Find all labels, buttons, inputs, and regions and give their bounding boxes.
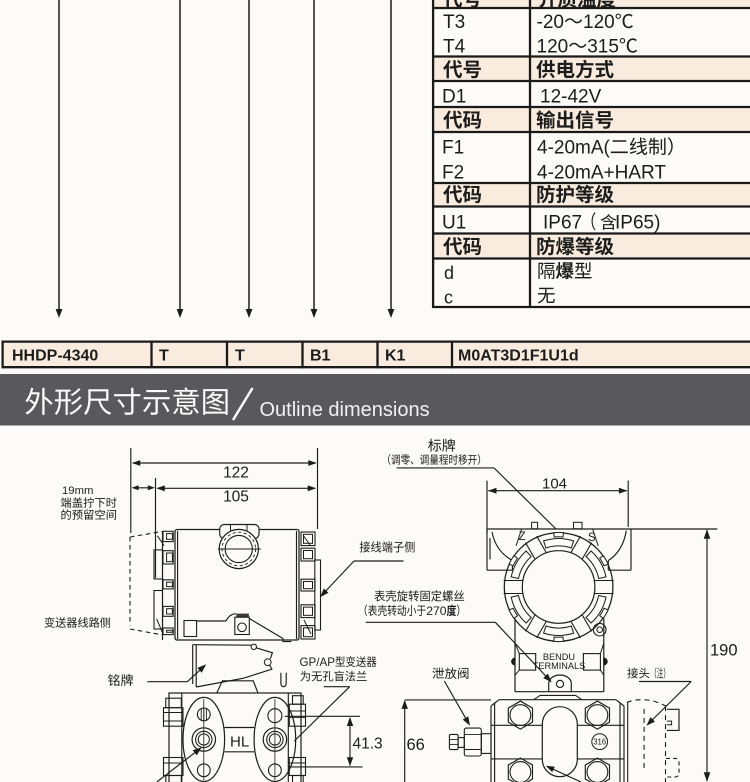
svg-text:M0AT3D1F1U1d: M0AT3D1F1U1d [458, 348, 579, 365]
svg-text:T: T [235, 348, 245, 365]
svg-text:HL: HL [230, 734, 249, 751]
svg-text:T: T [159, 348, 169, 365]
svg-text:12-42V: 12-42V [540, 87, 602, 108]
svg-text:IP65): IP65) [615, 213, 660, 234]
svg-text:IP67: IP67 [543, 213, 582, 234]
svg-text:122: 122 [223, 465, 249, 482]
svg-text:F2: F2 [442, 163, 464, 184]
svg-text:316: 316 [593, 738, 606, 747]
svg-text:TERMINALS: TERMINALS [533, 661, 586, 671]
svg-text:HHDP-4340: HHDP-4340 [12, 348, 98, 365]
svg-text:T3: T3 [443, 12, 465, 33]
svg-text:104: 104 [542, 476, 567, 493]
svg-text:U1: U1 [442, 213, 466, 234]
svg-text:-20: -20 [537, 12, 564, 33]
svg-text:T4: T4 [443, 37, 466, 58]
svg-text:19mm: 19mm [62, 485, 93, 497]
svg-text:105: 105 [223, 489, 249, 506]
svg-text:F1: F1 [442, 138, 464, 159]
svg-text:4-20mA(: 4-20mA( [537, 138, 611, 159]
svg-text:190: 190 [710, 642, 738, 660]
svg-text:K1: K1 [385, 348, 406, 365]
svg-text:66: 66 [407, 736, 425, 754]
svg-text:315: 315 [587, 37, 619, 58]
svg-text:D1: D1 [442, 87, 466, 108]
svg-text:c: c [444, 288, 453, 308]
svg-text:Outline dimensions: Outline dimensions [260, 399, 430, 421]
svg-text:B1: B1 [310, 348, 331, 365]
svg-text:270: 270 [426, 604, 447, 618]
svg-text:d: d [444, 263, 454, 283]
svg-text:120: 120 [537, 37, 569, 58]
svg-text:120: 120 [583, 12, 615, 33]
svg-text:Z: Z [519, 531, 526, 543]
svg-text:4-20mA+HART: 4-20mA+HART [537, 163, 666, 184]
svg-text:GP/AP: GP/AP [300, 656, 336, 669]
svg-text:41.3: 41.3 [353, 736, 383, 753]
